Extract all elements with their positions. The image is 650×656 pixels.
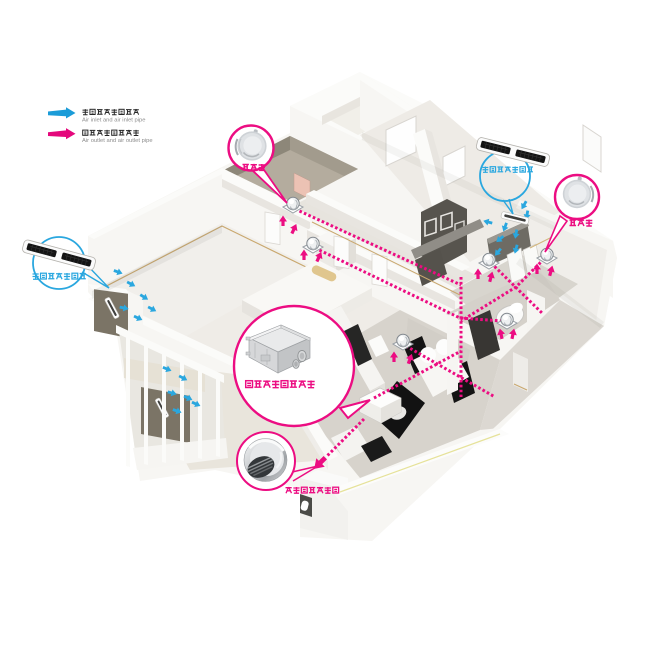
svg-text:Air inlet and air inlet pipe: Air inlet and air inlet pipe bbox=[82, 117, 145, 123]
svg-text:Air outlet and air outlet pipe: Air outlet and air outlet pipe bbox=[82, 138, 153, 144]
